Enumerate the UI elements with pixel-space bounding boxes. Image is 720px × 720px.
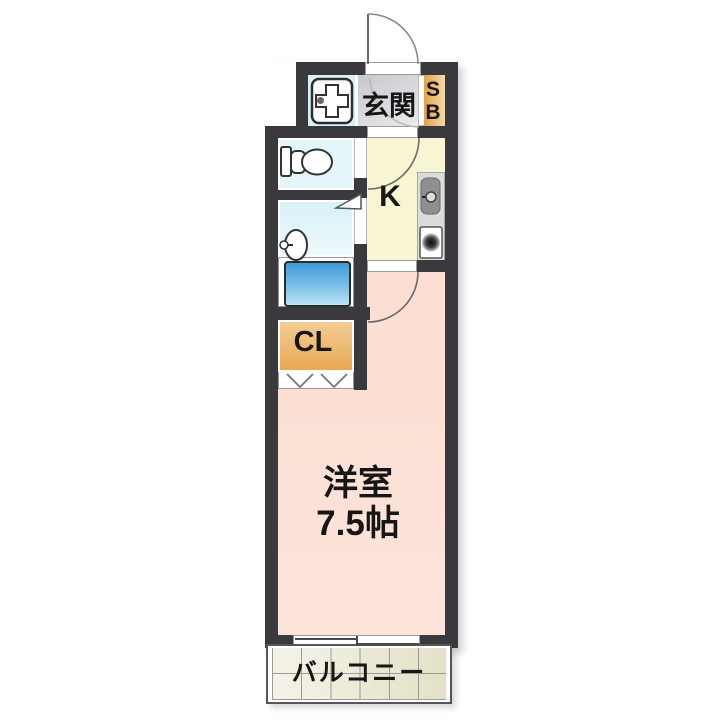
washing-machine-area (308, 75, 355, 126)
balcony-label: バルコニー (266, 653, 452, 689)
shoe-box-label-line1: S (421, 78, 445, 101)
shoe-box-label: S B (421, 78, 445, 124)
kitchen-counter (417, 172, 445, 262)
kitchen-label: K (360, 180, 420, 214)
toilet-room-floor (278, 138, 354, 190)
wall-left-upper (296, 62, 308, 126)
folding-door-strip (278, 372, 354, 389)
wall-left (265, 126, 278, 648)
main-room-name: 洋室 (278, 464, 438, 504)
floorplan-canvas: 玄関 S B K CL 洋室 7.5帖 バルコニー (0, 0, 720, 720)
entrance-doorway (365, 62, 421, 75)
shoe-box-label-line2: B (421, 101, 445, 124)
main-room-doorway (367, 260, 417, 272)
wall-toilet-washroom (265, 190, 356, 200)
bathtub-icon (284, 261, 351, 307)
closet-label: CL (278, 326, 348, 359)
main-room-size: 7.5帖 (278, 504, 438, 544)
washroom-floor (278, 200, 354, 257)
entrance-label: 玄関 (358, 84, 420, 123)
main-room-label: 洋室 7.5帖 (278, 464, 438, 544)
wall-entrance-bottom (265, 126, 458, 138)
wall-right (445, 62, 458, 648)
wall-bath-closet (265, 307, 370, 320)
entrance-door-swing-icon (368, 14, 418, 64)
kitchen-doorway (367, 126, 418, 138)
